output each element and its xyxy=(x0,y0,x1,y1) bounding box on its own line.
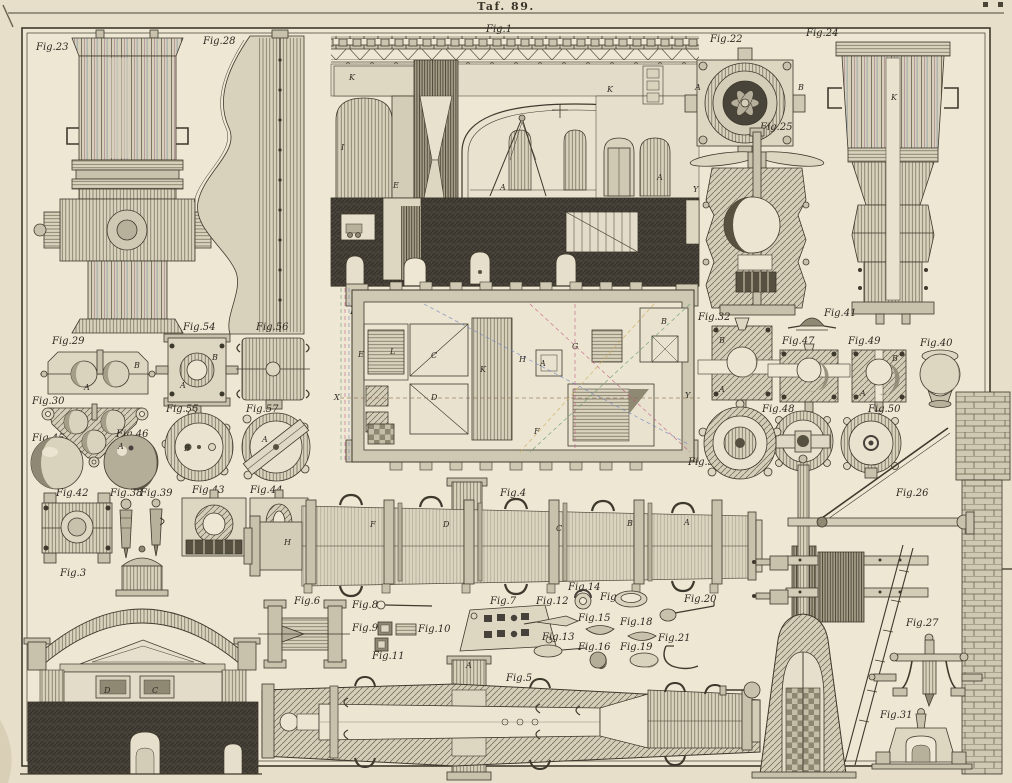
figure-24-label: Fig.24 xyxy=(805,28,838,39)
figure-11-label: Fig.11 xyxy=(371,651,404,662)
figure-29-label: Fig.29 xyxy=(51,336,85,347)
part-letter: B xyxy=(133,361,140,370)
scan-artifact-mark xyxy=(983,2,988,7)
figure-9-gauge-block: Fig.9 xyxy=(351,622,392,635)
scan-artifact-mark xyxy=(998,2,1003,7)
part-letter: K xyxy=(606,85,614,94)
part-letter: A xyxy=(261,435,268,444)
figure-49-label: Fig.49 xyxy=(847,336,881,347)
part-letter: C xyxy=(431,351,437,360)
figure-41-label: Fig.41 xyxy=(823,308,856,319)
part-letter: B xyxy=(891,354,898,363)
part-letter: B xyxy=(660,317,667,326)
part-letter: A xyxy=(465,661,472,670)
part-letter: L xyxy=(389,347,395,356)
figure-4-label: Fig.4 xyxy=(499,488,526,499)
figure-40-label: Fig.40 xyxy=(919,338,953,349)
part-letter: K xyxy=(348,73,356,82)
figure-20-label: Fig.20 xyxy=(683,594,717,605)
figure-22-label: Fig.22 xyxy=(709,34,742,45)
part-letter: A xyxy=(694,83,701,92)
part-letter: B xyxy=(797,83,804,92)
part-letter: E xyxy=(357,350,364,359)
figure-10-label: Fig.10 xyxy=(417,624,451,635)
part-letter: A xyxy=(656,173,663,182)
part-letter: A xyxy=(83,383,90,392)
part-letter: Y xyxy=(693,185,699,194)
figure-39-label: Fig.39 xyxy=(139,488,173,499)
figure-15-label: Fig.15 xyxy=(577,613,610,624)
part-letter: A xyxy=(499,183,506,192)
part-letter: K xyxy=(479,365,487,374)
figure-26-label: Fig.26 xyxy=(895,488,929,499)
part-letter: A xyxy=(179,381,186,390)
figure-31-label: Fig.31 xyxy=(879,710,912,721)
figure-23-label: Fig.23 xyxy=(35,42,68,53)
part-letter: H xyxy=(518,355,527,364)
part-letter: D xyxy=(430,393,438,402)
part-letter: E xyxy=(392,181,399,190)
figure-30-label: Fig.30 xyxy=(31,396,65,407)
part-letter: A xyxy=(683,518,690,527)
figure-56-label: Fig.56 xyxy=(255,322,289,333)
figure-16-label: Fig.16 xyxy=(577,642,611,653)
part-letter: F xyxy=(533,427,540,436)
part-letter: D xyxy=(103,686,111,695)
figure-19-label: Fig.19 xyxy=(619,642,653,653)
part-letter: H xyxy=(283,538,292,547)
part-letter: Y xyxy=(685,391,691,400)
figure-28-label: Fig.28 xyxy=(202,36,235,47)
figure-21-label: Fig.21 xyxy=(657,633,690,644)
figure-54-flask-elevation: Fig.54 xyxy=(156,322,238,416)
figure-43-label: Fig.43 xyxy=(191,485,224,496)
part-letter: B xyxy=(626,519,633,528)
figure-27-label: Fig.27 xyxy=(905,618,939,629)
figure-9-label: Fig.9 xyxy=(351,623,379,634)
part-letter: A xyxy=(859,389,866,398)
engraving-plate: Taf. 89. Fig.23 Fig.28 Fig.1 xyxy=(0,0,1012,783)
figure-54-label: Fig.54 xyxy=(182,322,215,333)
figure-18-label: Fig.18 xyxy=(619,617,652,628)
figure-14-label: Fig.14 xyxy=(567,582,600,593)
part-letter: F xyxy=(369,520,376,529)
part-letter: C xyxy=(556,524,562,533)
part-letter: A xyxy=(117,442,124,451)
part-letter: X xyxy=(333,393,340,402)
figure-1-foundry-hall-section: Fig.1 xyxy=(331,24,699,286)
figure-48-label: Fig.48 xyxy=(761,404,794,415)
figure-2-foundry-plan: Fig.2 xyxy=(340,282,700,470)
figure-32-label: Fig.32 xyxy=(697,312,730,323)
figure-12-label: Fig.12 xyxy=(535,596,568,607)
figure-10-gauge-bar: Fig.10 xyxy=(396,624,451,635)
part-letter: B xyxy=(211,353,218,362)
plate-title: Taf. 89. xyxy=(477,0,534,13)
part-letter: B xyxy=(183,444,190,453)
figure-6-label: Fig.6 xyxy=(293,596,321,607)
figure-38-label: Fig.38 xyxy=(109,488,142,499)
engraving-plate-page: Taf. 89. Fig.23 Fig.28 Fig.1 xyxy=(0,0,1012,783)
part-letter: D xyxy=(442,520,450,529)
part-letter: C xyxy=(152,686,158,695)
part-letter: A xyxy=(539,359,546,368)
part-letter: K xyxy=(890,93,898,102)
part-letter: B xyxy=(718,336,725,345)
figure-5-label: Fig.5 xyxy=(505,673,532,684)
figure-8-label: Fig.8 xyxy=(351,600,378,611)
figure-1-label: Fig.1 xyxy=(485,24,512,35)
figure-42-label: Fig.42 xyxy=(55,488,88,499)
figure-3-label: Fig.3 xyxy=(59,568,86,579)
figure-13-label: Fig.13 xyxy=(541,632,574,643)
part-letter: A xyxy=(718,385,725,394)
figure-7-label: Fig.7 xyxy=(489,596,517,607)
part-letter: G xyxy=(572,342,579,351)
